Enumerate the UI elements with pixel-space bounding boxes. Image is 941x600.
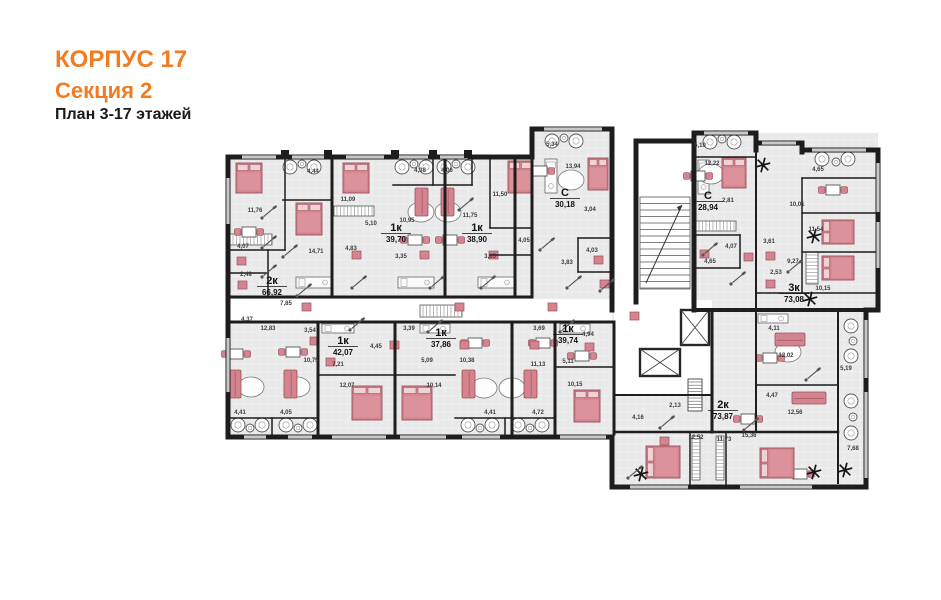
- room-area-label: 5,10: [365, 221, 377, 227]
- room-area-label: 4,05: [518, 238, 530, 244]
- bed: [588, 158, 608, 190]
- room-area-label: 11,76: [248, 208, 263, 214]
- balcony-chair: [461, 418, 475, 432]
- bed: [574, 390, 600, 422]
- bed: [402, 386, 432, 420]
- room-area-label: 14,71: [308, 249, 324, 255]
- room-area-label: 4,41: [484, 410, 496, 416]
- floor-plan: 11,764,4414,714,072,487,8511,095,104,834…: [0, 0, 941, 600]
- room-area-label: 4,38: [414, 168, 426, 174]
- room-area-label: 4,65: [704, 259, 716, 265]
- svg-text:1к: 1к: [435, 327, 447, 339]
- room-area-label: 4,72: [532, 410, 544, 416]
- balcony-chair: [303, 418, 317, 432]
- room-area-label: 5,19: [840, 366, 852, 372]
- balcony-chair: [849, 413, 857, 421]
- balcony-chair: [844, 394, 858, 408]
- svg-text:39,74: 39,74: [558, 336, 579, 345]
- svg-text:39,70: 39,70: [386, 235, 407, 244]
- balcony-chair: [485, 418, 499, 432]
- appliance: [237, 257, 246, 265]
- room-area-label: 3,61: [763, 239, 775, 245]
- balcony-chair: [832, 158, 840, 166]
- room-area-label: 3,65: [484, 254, 496, 260]
- dining-table: [819, 185, 848, 195]
- room-area-label: 10,15: [567, 382, 583, 388]
- appliance: [455, 303, 464, 311]
- svg-text:2к: 2к: [266, 275, 278, 287]
- balcony-chair: [452, 160, 460, 168]
- balcony-chair: [815, 152, 829, 166]
- stairs: [640, 197, 690, 289]
- room-area-label: 4,16: [632, 415, 644, 421]
- room-area-label: 2,48: [240, 272, 252, 278]
- balcony-chair: [294, 424, 302, 432]
- balcony-chair: [255, 418, 269, 432]
- room-area-label: 4,07: [725, 244, 737, 250]
- balcony-chair: [849, 337, 857, 345]
- wall-stub: [464, 150, 472, 158]
- floor-plan-page: КОРПУС 17 Секция 2 План 3-17 этажей 11,7…: [0, 0, 941, 600]
- svg-text:30,18: 30,18: [555, 200, 576, 209]
- appliance: [548, 303, 557, 311]
- wardrobe: [806, 252, 818, 284]
- svg-text:42,07: 42,07: [333, 348, 354, 357]
- svg-text:73,87: 73,87: [713, 412, 734, 421]
- svg-text:66,92: 66,92: [262, 288, 283, 297]
- room-area-label: 12,83: [260, 326, 276, 332]
- bed: [760, 448, 794, 478]
- room-area-label: 10,75: [303, 358, 319, 364]
- svg-text:73,08: 73,08: [784, 295, 805, 304]
- svg-text:1к: 1к: [562, 323, 574, 335]
- room-area-label: 3,35: [395, 254, 407, 260]
- wardrobe: [692, 436, 700, 480]
- balcony-chair: [844, 426, 858, 440]
- bed: [822, 256, 854, 280]
- room-area-label: 2,53: [770, 270, 782, 276]
- room-area-label: 12,07: [339, 383, 355, 389]
- room-area-label: 3,54: [304, 328, 316, 334]
- elevator: [640, 349, 680, 376]
- room-area-label: 13,94: [565, 164, 581, 170]
- room-area-label: 3,83: [561, 260, 573, 266]
- wardrobe: [334, 206, 374, 216]
- balcony-chair: [246, 424, 254, 432]
- room-area-label: 9,27: [787, 259, 799, 265]
- appliance: [420, 251, 429, 259]
- kitchen-counter: [398, 277, 434, 288]
- room-area-label: 3,69: [533, 326, 545, 332]
- balcony-chair: [535, 418, 549, 432]
- balcony-chair: [844, 319, 858, 333]
- room-area-label: 12,02: [778, 353, 794, 359]
- appliance: [352, 251, 361, 259]
- appliance: [766, 280, 775, 288]
- svg-text:3к: 3к: [788, 282, 800, 294]
- appliance: [302, 303, 311, 311]
- room-area-label: 4,06: [441, 168, 453, 174]
- room-area-label: 4,11: [768, 326, 780, 332]
- sofa: [775, 333, 805, 346]
- balcony-chair: [844, 349, 858, 363]
- room-area-label: 11,13: [531, 362, 546, 368]
- svg-text:2к: 2к: [717, 399, 729, 411]
- room-area-label: 4,47: [766, 393, 778, 399]
- svg-text:С: С: [561, 187, 569, 199]
- bed: [296, 203, 322, 235]
- balcony-chair: [298, 160, 306, 168]
- room-area-label: 4,03: [586, 248, 598, 254]
- room-area-label: 2,81: [722, 198, 734, 204]
- room-area-label: 5,34: [546, 142, 558, 148]
- dining-table: [279, 347, 308, 357]
- room-area-label: 7,85: [280, 301, 292, 307]
- appliance: [594, 256, 603, 264]
- balcony-chair: [461, 160, 475, 174]
- balcony-chair: [841, 152, 855, 166]
- sofa: [284, 370, 297, 398]
- appliance: [660, 437, 669, 445]
- room-area-label: 3,39: [403, 326, 415, 332]
- room-area-label: 12,52: [688, 435, 704, 441]
- room-area-label: 7,68: [847, 446, 859, 452]
- room-area-label: 11,09: [341, 197, 356, 203]
- room-area-label: 4,07: [237, 244, 249, 250]
- bed: [352, 386, 382, 420]
- room-area-label: 5,11: [562, 359, 574, 365]
- room-area-label: 15,36: [741, 433, 757, 439]
- table-oval: [238, 377, 264, 397]
- room-area-label: 4,45: [370, 344, 382, 350]
- appliance: [460, 341, 469, 349]
- sofa: [441, 188, 454, 216]
- room-area-label: 4,05: [280, 410, 292, 416]
- appliance: [585, 343, 594, 351]
- balcony-chair: [560, 134, 568, 142]
- wall-stub: [324, 150, 332, 158]
- bed: [822, 220, 854, 244]
- balcony-chair: [231, 418, 245, 432]
- room-area-label: 11,54: [809, 227, 824, 233]
- room-area-label: 12,56: [787, 410, 803, 416]
- room-area-label: 10,95: [399, 218, 415, 224]
- svg-text:37,86: 37,86: [431, 340, 452, 349]
- room-area-label: 4,37: [241, 317, 253, 323]
- balcony-chair: [727, 135, 741, 149]
- svg-text:1к: 1к: [471, 222, 483, 234]
- kitchen-counter: [758, 314, 788, 323]
- svg-text:С: С: [704, 190, 712, 202]
- room-area-label: 12,22: [704, 161, 720, 167]
- elevator: [681, 310, 709, 345]
- dining-table: [235, 227, 264, 237]
- kitchen-counter: [296, 277, 332, 288]
- room-area-label: 5,09: [421, 358, 433, 364]
- balcony-chair: [718, 135, 726, 143]
- room-area-label: 7,21: [332, 362, 344, 368]
- bed: [508, 161, 533, 193]
- wall-stub: [391, 150, 399, 158]
- svg-text:1к: 1к: [390, 222, 402, 234]
- sofa: [462, 370, 475, 398]
- balcony-chair: [476, 424, 484, 432]
- room-area-label: 10,14: [426, 383, 442, 389]
- appliance: [630, 312, 639, 320]
- sofa: [415, 188, 428, 216]
- dining-table: [684, 171, 713, 181]
- dining-table: [436, 235, 465, 245]
- room-area-label: 2,13: [669, 403, 681, 409]
- room-area-label: 10,15: [815, 286, 831, 292]
- room-area-label: 11,73: [717, 437, 732, 443]
- sofa: [524, 370, 537, 398]
- svg-text:1к: 1к: [337, 335, 349, 347]
- appliance: [238, 281, 247, 289]
- room-area-label: 11,50: [493, 192, 508, 198]
- sofa: [792, 392, 826, 404]
- appliance: [766, 252, 775, 260]
- svg-text:38,90: 38,90: [467, 235, 488, 244]
- kitchen-counter: [322, 324, 354, 333]
- balcony-chair: [410, 160, 418, 168]
- balcony-chair: [526, 424, 534, 432]
- appliance: [744, 253, 753, 261]
- wall-stub: [281, 150, 289, 158]
- room-area-label: 4,83: [345, 246, 357, 252]
- bed: [722, 158, 746, 188]
- bed: [343, 163, 369, 193]
- room-area-label: 4,44: [307, 169, 319, 175]
- bed: [236, 163, 262, 193]
- room-area-label: 4,65: [812, 167, 824, 173]
- room-area-label: 5,19: [694, 143, 706, 149]
- room-area-label: 11,75: [463, 213, 478, 219]
- balcony-chair: [279, 418, 293, 432]
- room-area-label: 4,41: [234, 410, 246, 416]
- wall-stub: [429, 150, 437, 158]
- room-area-label: 10,01: [789, 202, 805, 208]
- room-area-label: 4,94: [582, 332, 594, 338]
- balcony-chair: [395, 160, 409, 174]
- appliance: [530, 341, 539, 349]
- svg-text:28,94: 28,94: [698, 203, 719, 212]
- balcony-chair: [569, 134, 583, 148]
- room-area-label: 10,38: [459, 358, 475, 364]
- wardrobe: [696, 221, 736, 231]
- room-area-label: 3,04: [584, 207, 596, 213]
- bed: [646, 446, 680, 478]
